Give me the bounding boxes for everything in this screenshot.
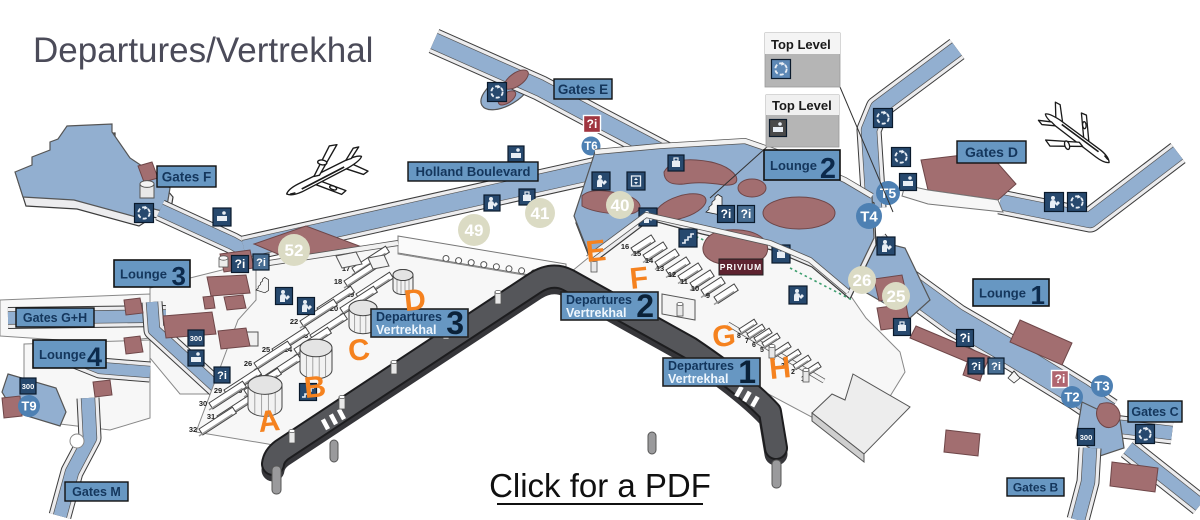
svg-text:Gates E: Gates E [558,82,608,97]
svg-text:Click for a PDF: Click for a PDF [489,467,711,504]
svg-text:4: 4 [87,342,102,372]
svg-text:9: 9 [706,291,710,300]
svg-text:7: 7 [745,338,749,345]
svg-text:1: 1 [738,354,756,390]
svg-text:Gates C: Gates C [1131,405,1178,419]
svg-text:18: 18 [334,277,342,286]
svg-text:5: 5 [760,347,764,354]
svg-text:Gates D: Gates D [965,144,1018,160]
svg-text:Lounge: Lounge [979,286,1026,301]
svg-text:15: 15 [633,249,641,258]
svg-text:6: 6 [752,342,756,349]
svg-text:F: F [628,261,650,296]
svg-text:?i: ?i [217,370,227,382]
svg-text:2: 2 [820,153,836,185]
svg-text:8: 8 [737,333,741,340]
svg-text:Lounge: Lounge [120,267,167,282]
svg-text:T9: T9 [21,399,36,414]
svg-text:?i: ?i [960,331,971,345]
svg-text:?i: ?i [971,361,981,373]
svg-text:Vertrekhal: Vertrekhal [668,372,728,386]
svg-text:Departures: Departures [566,293,632,307]
svg-text:29: 29 [214,386,222,395]
svg-text:26: 26 [244,359,252,368]
svg-text:E: E [584,234,607,269]
svg-text:300: 300 [190,334,203,343]
svg-text:40: 40 [611,196,630,215]
svg-text:300: 300 [22,382,35,391]
svg-text:PRIVIUM: PRIVIUM [720,262,762,272]
svg-text:G: G [711,319,738,354]
svg-text:49: 49 [465,221,484,240]
svg-text:32: 32 [189,425,197,434]
svg-text:Gates G+H: Gates G+H [23,311,87,325]
svg-text:Lounge: Lounge [770,158,817,173]
svg-text:?i: ?i [1055,372,1066,386]
svg-text:?i: ?i [741,207,752,221]
svg-text:25: 25 [887,287,906,306]
svg-text:?i: ?i [235,257,246,271]
svg-text:11: 11 [680,277,688,286]
svg-text:300: 300 [1080,433,1093,442]
svg-text:Lounge: Lounge [39,347,86,362]
svg-text:2: 2 [791,369,795,376]
svg-text:12: 12 [668,270,676,279]
svg-text:C: C [347,333,372,368]
svg-text:3: 3 [172,261,186,291]
svg-text:Gates F: Gates F [162,169,212,184]
svg-text:?i: ?i [256,257,266,269]
svg-text:41: 41 [531,204,550,223]
svg-text:Holland Boulevard: Holland Boulevard [416,164,531,179]
svg-text:25: 25 [262,345,270,354]
svg-text:Top Level: Top Level [772,98,832,113]
svg-text:Departures/Vertrekhal: Departures/Vertrekhal [33,31,373,70]
svg-text:52: 52 [285,241,304,260]
svg-text:T4: T4 [860,208,878,225]
svg-text:?i: ?i [587,117,598,131]
svg-text:16: 16 [621,242,629,251]
svg-text:26: 26 [853,271,872,290]
svg-text:T2: T2 [1064,390,1079,405]
svg-text:1: 1 [1031,280,1045,310]
svg-text:Vertrekhal: Vertrekhal [566,306,626,320]
svg-text:?i: ?i [991,361,1001,373]
svg-text:10: 10 [691,284,699,293]
svg-text:Gates B: Gates B [1013,480,1059,494]
svg-text:Top Level: Top Level [771,37,831,52]
svg-text:B: B [303,370,328,405]
svg-text:3: 3 [446,305,464,341]
svg-text:22: 22 [290,317,298,326]
svg-text:D: D [403,283,428,318]
svg-text:T3: T3 [1094,379,1109,394]
svg-text:?i: ?i [721,207,732,221]
svg-text:30: 30 [199,399,207,408]
svg-text:A: A [257,404,282,439]
svg-text:13: 13 [656,264,664,273]
svg-text:H: H [768,351,793,386]
svg-text:Departures: Departures [668,359,734,373]
svg-text:Gates M: Gates M [72,485,121,499]
svg-text:Vertrekhal: Vertrekhal [376,323,436,337]
